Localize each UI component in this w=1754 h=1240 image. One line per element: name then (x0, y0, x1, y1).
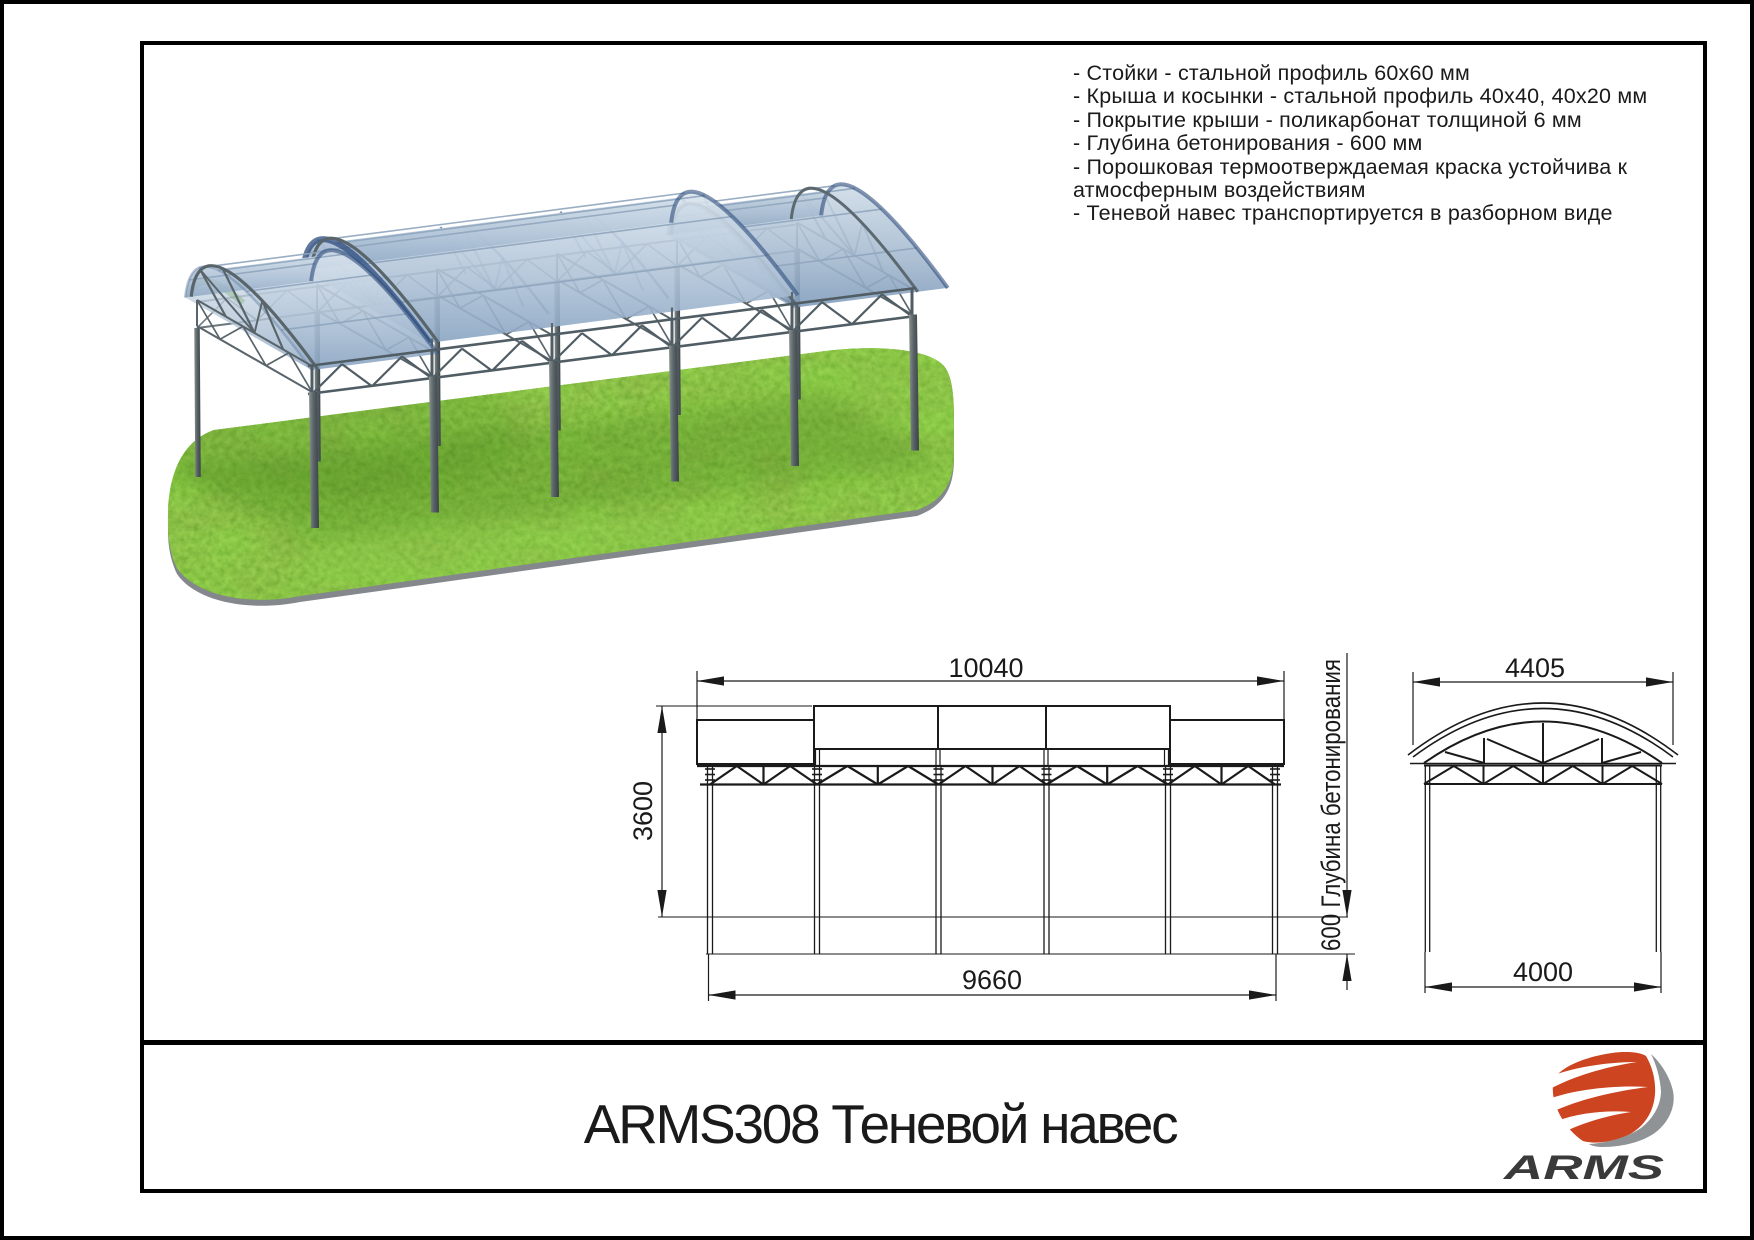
svg-text:10040: 10040 (948, 653, 1023, 683)
svg-text:600 Глубина бетонирования: 600 Глубина бетонирования (1316, 659, 1346, 951)
svg-text:4405: 4405 (1505, 653, 1565, 683)
svg-text:ARMS: ARMS (1502, 1149, 1664, 1187)
svg-text:9660: 9660 (962, 965, 1022, 995)
svg-text:4000: 4000 (1513, 957, 1573, 987)
svg-text:3600: 3600 (628, 781, 658, 841)
